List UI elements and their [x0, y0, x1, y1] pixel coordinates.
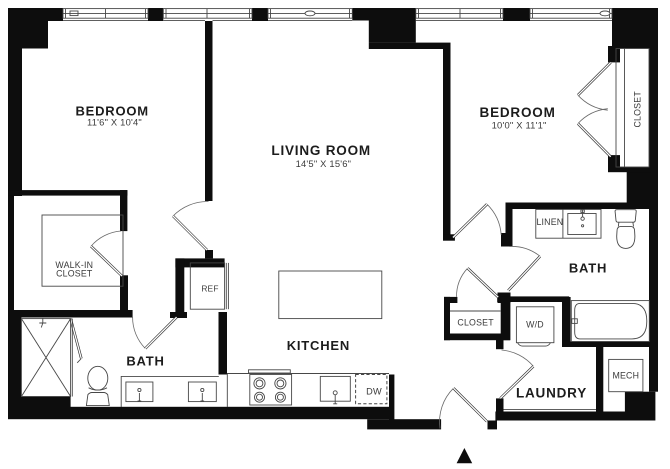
svg-text:REF: REF	[201, 283, 218, 293]
svg-text:CLOSET: CLOSET	[633, 91, 643, 128]
svg-text:LINEN: LINEN	[536, 217, 563, 227]
svg-text:BEDROOM: BEDROOM	[480, 105, 556, 120]
svg-text:KITCHEN: KITCHEN	[287, 338, 350, 353]
svg-text:11'6" X 10'4": 11'6" X 10'4"	[87, 117, 142, 128]
svg-text:DW: DW	[366, 387, 382, 397]
svg-text:14'5" X 15'6": 14'5" X 15'6"	[296, 158, 352, 169]
svg-text:CLOSET: CLOSET	[457, 318, 494, 328]
svg-text:BATH: BATH	[569, 261, 607, 276]
svg-text:CLOSET: CLOSET	[56, 269, 93, 279]
svg-text:MECH: MECH	[612, 370, 639, 380]
svg-text:LAUNDRY: LAUNDRY	[516, 386, 587, 401]
svg-text:10'0" X 11'1": 10'0" X 11'1"	[492, 119, 547, 130]
svg-text:W/D: W/D	[526, 319, 544, 329]
svg-text:BATH: BATH	[126, 353, 164, 368]
svg-text:LIVING ROOM: LIVING ROOM	[271, 143, 371, 158]
